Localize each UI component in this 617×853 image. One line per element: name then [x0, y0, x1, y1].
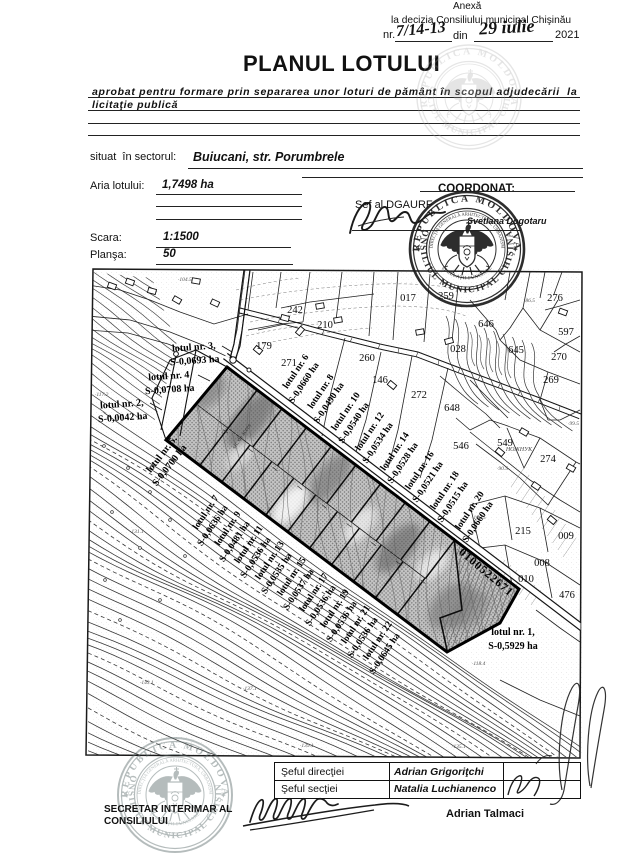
svg-text:✦: ✦ — [415, 245, 422, 254]
svg-text:✦: ✦ — [220, 791, 227, 800]
svg-text:ŞI RELAŢII FUNCIARE: ŞI RELAŢII FUNCIARE — [440, 266, 493, 282]
svg-text:✦: ✦ — [422, 93, 429, 102]
svg-text:✦: ✦ — [123, 791, 130, 800]
svg-text:CONSILIUL MUNICIPAL CHIŞINĂU: CONSILIUL MUNICIPAL CHIŞINĂU — [0, 0, 224, 840]
svg-text:✦: ✦ — [512, 245, 519, 254]
svg-text:✦: ✦ — [509, 93, 516, 102]
